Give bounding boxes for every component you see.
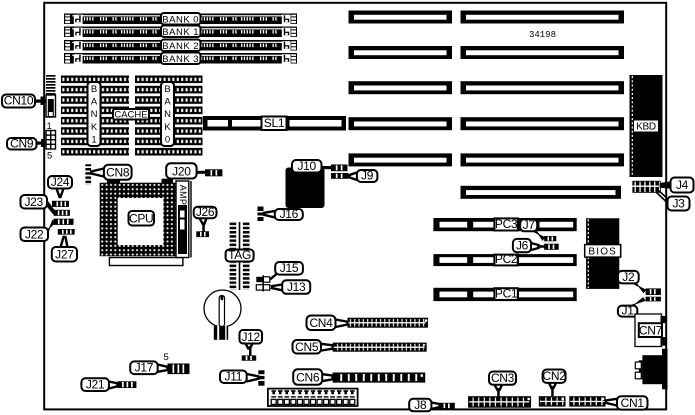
svg-text:CN3: CN3: [491, 371, 515, 385]
svg-text:J13: J13: [287, 280, 306, 294]
svg-text:5: 5: [164, 352, 169, 363]
svg-text:PC3: PC3: [495, 217, 518, 231]
svg-text:CN2: CN2: [543, 369, 567, 383]
svg-text:CN9: CN9: [10, 136, 34, 150]
svg-text:J1: J1: [622, 304, 635, 318]
svg-text:CN8: CN8: [106, 166, 130, 180]
svg-text:BANK 2: BANK 2: [162, 41, 199, 52]
svg-text:PC1: PC1: [495, 287, 518, 301]
svg-text:CN1: CN1: [621, 396, 645, 410]
svg-text:J23: J23: [24, 195, 43, 209]
svg-text:J16: J16: [280, 207, 299, 221]
svg-text:J27: J27: [55, 248, 74, 262]
svg-text:J26: J26: [196, 205, 215, 219]
svg-text:BANK 1: BANK 1: [162, 27, 199, 38]
svg-text:J15: J15: [280, 261, 299, 275]
svg-text:J7: J7: [523, 218, 536, 232]
svg-text:J9: J9: [361, 169, 374, 183]
svg-text:J17: J17: [135, 361, 154, 375]
svg-text:CPU: CPU: [129, 212, 153, 226]
svg-text:J4: J4: [676, 178, 689, 192]
svg-text:34198: 34198: [529, 30, 556, 40]
svg-text:J22: J22: [25, 227, 44, 241]
svg-text:BANK 3: BANK 3: [162, 54, 199, 65]
svg-text:CN5: CN5: [295, 340, 319, 354]
svg-text:CN10: CN10: [4, 94, 34, 108]
svg-text:AMP: AMP: [178, 185, 188, 205]
svg-text:5: 5: [47, 151, 52, 162]
svg-text:J11: J11: [225, 370, 243, 384]
svg-text:KBD: KBD: [636, 122, 656, 133]
svg-text:CN7: CN7: [639, 323, 663, 337]
svg-text:CN4: CN4: [309, 316, 333, 330]
svg-text:J20: J20: [172, 164, 191, 178]
svg-text:TAG: TAG: [228, 248, 251, 262]
svg-text:SL1: SL1: [264, 116, 285, 130]
svg-text:PC2: PC2: [495, 252, 518, 266]
svg-text:J6: J6: [516, 239, 529, 253]
svg-text:BANK 0: BANK 0: [162, 14, 199, 25]
svg-text:J2: J2: [622, 270, 635, 284]
svg-text:J3: J3: [672, 197, 685, 211]
svg-text:J12: J12: [241, 330, 260, 344]
svg-text:J21: J21: [86, 378, 105, 392]
svg-text:BIOS: BIOS: [588, 246, 617, 257]
svg-text:CACHE: CACHE: [114, 110, 147, 121]
svg-text:J8: J8: [414, 398, 427, 412]
svg-text:CN6: CN6: [296, 371, 320, 385]
svg-text:J10: J10: [297, 159, 316, 173]
svg-text:J24: J24: [51, 175, 70, 189]
